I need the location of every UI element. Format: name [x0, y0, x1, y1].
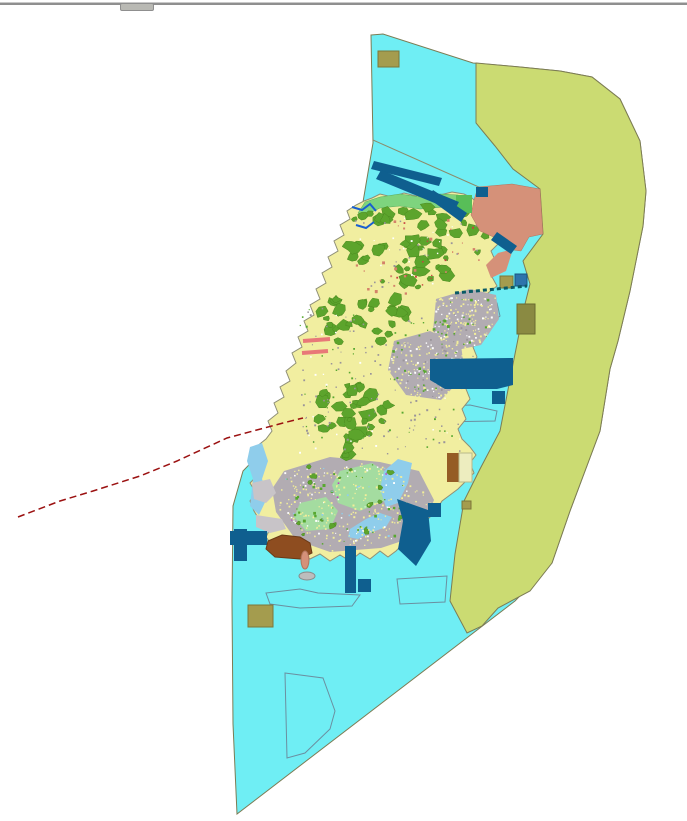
land-use-speckle: [301, 529, 302, 530]
land-use-speckle: [365, 494, 367, 496]
land-use-speckle: [379, 534, 381, 536]
land-use-speckle: [323, 525, 324, 526]
land-use-speckle: [385, 479, 386, 480]
land-use-speckle: [307, 432, 309, 434]
land-use-speckle: [397, 448, 398, 449]
land-use-speckle: [314, 424, 316, 426]
pier-L-horizontal: [230, 531, 267, 545]
land-use-speckle: [326, 326, 328, 328]
land-use-speckle: [479, 339, 481, 341]
land-use-speckle: [432, 388, 434, 390]
land-use-speckle: [405, 354, 407, 356]
land-use-speckle: [437, 331, 439, 333]
mountain-blob: [301, 533, 304, 536]
land-use-speckle: [452, 348, 453, 349]
land-use-speckle: [368, 529, 369, 530]
land-use-speckle: [355, 378, 356, 379]
land-use-speckle: [327, 520, 329, 522]
land-use-speckle: [395, 390, 396, 391]
land-use-speckle: [333, 537, 335, 539]
land-use-speckle: [446, 305, 448, 307]
land-use-speckle: [414, 390, 416, 392]
land-use-speckle: [378, 518, 379, 519]
land-use-speckle: [444, 394, 446, 396]
land-use-speckle: [349, 372, 351, 374]
land-use-speckle: [430, 349, 431, 350]
land-use-speckle: [300, 528, 301, 529]
land-use-speckle: [315, 520, 317, 522]
land-use-speckle: [388, 508, 390, 510]
land-use-speckle: [456, 344, 458, 346]
land-use-speckle: [367, 288, 370, 291]
land-use-speckle: [445, 334, 447, 336]
land-use-speckle: [382, 467, 384, 469]
land-use-speckle: [414, 369, 415, 370]
land-use-speckle: [364, 270, 365, 271]
land-use-speckle: [435, 326, 436, 327]
land-use-speckle: [384, 468, 385, 469]
land-use-speckle: [378, 394, 380, 396]
land-use-speckle: [491, 317, 493, 319]
land-use-speckle: [389, 429, 391, 431]
land-use-speckle: [389, 528, 390, 529]
land-use-speckle: [445, 350, 447, 352]
land-use-speckle: [441, 314, 442, 315]
land-use-speckle: [363, 222, 365, 224]
land-use-speckle: [350, 331, 351, 332]
land-use-speckle: [328, 402, 329, 403]
land-use-speckle: [363, 517, 365, 519]
land-use-speckle: [404, 222, 406, 224]
land-use-speckle: [419, 367, 422, 370]
land-use-speckle: [374, 360, 376, 362]
land-use-speckle: [353, 484, 354, 485]
land-use-speckle: [417, 369, 418, 370]
land-use-speckle: [443, 320, 444, 321]
square-south-blue: [358, 579, 371, 592]
land-use-speckle: [392, 237, 394, 239]
land-use-speckle: [411, 240, 413, 242]
land-use-speckle: [379, 473, 381, 475]
land-use-speckle: [408, 375, 409, 376]
land-use-speckle: [365, 347, 367, 349]
land-use-speckle: [307, 532, 309, 534]
pink-pier-2: [302, 351, 328, 353]
land-use-speckle: [441, 425, 443, 427]
land-use-speckle: [410, 402, 412, 404]
land-use-speckle: [410, 344, 411, 345]
land-use-speckle: [474, 333, 476, 335]
land-use-speckle: [395, 332, 397, 334]
land-use-speckle: [309, 493, 310, 494]
land-use-speckle: [490, 308, 492, 310]
land-use-speckle: [298, 470, 299, 471]
land-use-speckle: [364, 468, 365, 469]
land-use-speckle: [414, 387, 415, 388]
land-use-speckle: [422, 491, 424, 493]
land-use-speckle: [344, 468, 345, 469]
land-use-speckle: [374, 282, 376, 284]
land-use-speckle: [403, 228, 405, 230]
land-use-speckle: [306, 430, 308, 432]
land-use-speckle: [375, 509, 376, 510]
land-use-speckle: [414, 269, 417, 272]
land-use-speckle: [314, 483, 316, 485]
land-use-speckle: [404, 275, 406, 277]
land-use-speckle: [382, 261, 385, 264]
land-use-speckle: [421, 318, 423, 320]
land-use-speckle: [466, 314, 467, 315]
land-use-speckle: [391, 538, 392, 539]
land-use-speckle: [374, 527, 375, 528]
land-use-speckle: [293, 518, 295, 520]
land-use-speckle: [471, 322, 473, 324]
land-use-speckle: [393, 285, 395, 287]
land-use-speckle: [308, 515, 309, 516]
land-use-speckle: [402, 485, 403, 486]
land-use-speckle: [382, 505, 384, 507]
land-use-speckle: [330, 474, 331, 475]
land-use-speckle: [461, 327, 463, 329]
land-use-speckle: [370, 426, 372, 428]
land-use-speckle: [331, 363, 333, 365]
land-use-speckle: [416, 348, 418, 350]
land-use-speckle: [455, 309, 456, 310]
land-use-speckle: [413, 364, 414, 365]
land-use-speckle: [371, 543, 372, 544]
land-use-speckle: [447, 352, 449, 354]
land-use-speckle: [367, 539, 369, 541]
land-use-speckle: [475, 337, 477, 339]
land-use-speckle: [353, 505, 355, 507]
land-use-speckle: [381, 508, 382, 509]
land-use-speckle: [392, 478, 394, 480]
land-use-speckle: [328, 505, 329, 506]
land-use-speckle: [307, 476, 309, 478]
land-use-speckle: [321, 334, 323, 336]
land-use-speckle: [486, 336, 487, 337]
land-use-speckle: [448, 329, 449, 330]
land-use-speckle: [310, 314, 312, 316]
land-use-speckle: [293, 521, 295, 523]
land-use-speckle: [409, 428, 410, 429]
land-use-speckle: [339, 494, 341, 496]
land-use-speckle: [423, 387, 425, 389]
land-use-speckle: [404, 346, 406, 348]
land-use-speckle: [366, 527, 368, 529]
land-use-speckle: [396, 474, 397, 475]
land-use-speckle: [349, 472, 350, 473]
land-use-speckle: [463, 316, 465, 318]
land-use-speckle: [425, 438, 426, 439]
land-use-speckle: [454, 335, 456, 337]
land-use-speckle: [293, 513, 294, 514]
land-use-speckle: [363, 500, 364, 501]
land-use-speckle: [362, 530, 364, 532]
land-use-speckle: [435, 322, 437, 324]
land-use-speckle: [363, 324, 365, 326]
land-use-speckle: [413, 429, 414, 430]
land-use-speckle: [472, 356, 473, 357]
land-use-speckle: [376, 513, 377, 514]
land-use-speckle: [424, 255, 425, 256]
land-use-speckle: [297, 473, 299, 475]
land-use-speckle: [331, 477, 332, 478]
land-use-speckle: [350, 321, 352, 323]
harbor-square-east: [492, 391, 505, 404]
land-use-speckle: [362, 487, 364, 489]
land-use-speckle: [427, 330, 428, 331]
land-use-speckle: [473, 314, 475, 316]
map-canvas[interactable]: [0, 5, 687, 821]
khaki-rect-bottom: [248, 605, 273, 627]
land-use-speckle: [462, 243, 463, 244]
land-use-speckle: [435, 311, 437, 313]
land-use-speckle: [307, 525, 308, 526]
land-use-speckle: [323, 484, 326, 487]
land-use-speckle: [418, 388, 419, 389]
land-use-speckle: [355, 493, 356, 494]
land-use-speckle: [406, 491, 407, 492]
land-use-speckle: [365, 352, 366, 353]
mountain-blob: [362, 418, 368, 425]
land-use-speckle: [383, 435, 385, 437]
land-use-speckle: [356, 489, 357, 490]
land-use-speckle: [387, 453, 388, 454]
land-use-speckle: [332, 550, 334, 552]
land-use-speckle: [327, 425, 328, 426]
land-use-speckle: [435, 416, 437, 418]
land-use-speckle: [436, 353, 437, 354]
land-use-speckle: [339, 479, 341, 481]
land-use-speckle: [396, 377, 398, 379]
land-use-speckle: [380, 265, 382, 267]
land-use-speckle: [444, 430, 446, 432]
land-use-speckle: [368, 426, 370, 428]
land-use-speckle: [419, 355, 421, 357]
land-use-speckle: [300, 325, 301, 326]
land-use-speckle: [297, 496, 299, 498]
land-use-speckle: [306, 426, 307, 427]
land-use-speckle: [455, 322, 457, 324]
land-use-speckle: [450, 297, 452, 299]
land-use-speckle: [453, 333, 455, 335]
land-use-speckle: [488, 306, 489, 307]
land-use-speckle: [353, 348, 355, 350]
land-use-speckle: [369, 515, 371, 517]
land-use-speckle: [463, 344, 464, 345]
land-use-speckle: [291, 517, 292, 518]
land-use-speckle: [407, 380, 409, 382]
land-use-speckle: [332, 507, 333, 508]
land-use-speckle: [443, 338, 445, 340]
land-use-speckle: [344, 449, 346, 451]
land-use-speckle: [476, 250, 478, 252]
land-use-speckle: [315, 448, 317, 450]
land-use-speckle: [388, 282, 389, 283]
land-use-speckle: [435, 331, 436, 332]
land-use-speckle: [420, 394, 422, 396]
land-use-speckle: [405, 292, 407, 294]
land-use-speckle: [389, 249, 390, 250]
land-use-speckle: [318, 487, 320, 489]
land-use-speckle: [397, 437, 398, 438]
land-use-speckle: [405, 372, 406, 373]
map-window: [0, 0, 687, 821]
land-use-speckle: [430, 339, 432, 341]
land-use-speckle: [306, 489, 308, 491]
land-use-speckle: [450, 302, 451, 303]
land-use-speckle: [347, 530, 349, 532]
land-use-speckle: [447, 336, 449, 338]
land-use-speckle: [320, 488, 323, 491]
land-use-speckle: [303, 379, 305, 381]
land-use-speckle: [433, 439, 435, 441]
land-use-speckle: [394, 220, 397, 223]
land-use-speckle: [455, 355, 457, 357]
land-use-speckle: [347, 524, 348, 525]
land-use-speckle: [399, 249, 400, 250]
land-use-speckle: [400, 521, 401, 522]
land-use-speckle: [401, 349, 403, 351]
land-use-speckle: [374, 510, 376, 512]
land-use-speckle: [357, 529, 359, 531]
land-use-speckle: [419, 414, 421, 416]
land-use-speckle: [426, 409, 428, 411]
land-use-speckle: [458, 326, 459, 327]
land-use-speckle: [474, 304, 476, 306]
land-use-speckle: [474, 345, 476, 347]
land-use-speckle: [384, 526, 386, 528]
land-use-speckle: [298, 512, 300, 514]
land-use-speckle: [353, 542, 355, 544]
land-use-speckle: [479, 331, 480, 332]
land-use-speckle: [408, 261, 410, 263]
land-use-speckle: [443, 305, 444, 306]
khaki-square-se: [462, 501, 471, 509]
land-use-speckle: [336, 315, 337, 316]
land-use-speckle: [394, 267, 397, 270]
land-use-speckle: [418, 370, 419, 371]
land-use-speckle: [418, 346, 420, 348]
land-use-speckle: [402, 374, 403, 375]
land-use-speckle: [323, 400, 325, 402]
land-use-speckle: [450, 305, 451, 306]
land-use-speckle: [400, 366, 401, 367]
land-use-speckle: [335, 491, 336, 492]
land-use-speckle: [404, 494, 406, 496]
land-use-speckle: [443, 441, 445, 443]
land-use-speckle: [411, 361, 412, 362]
land-use-speckle: [395, 350, 396, 351]
land-use-speckle: [432, 283, 434, 285]
land-use-speckle: [378, 354, 380, 356]
land-use-speckle: [450, 229, 451, 230]
land-use-speckle: [326, 384, 328, 386]
land-use-speckle: [458, 329, 459, 330]
land-use-speckle: [360, 466, 361, 467]
land-use-speckle: [472, 227, 474, 229]
land-use-speckle: [444, 330, 445, 331]
land-use-speckle: [396, 348, 397, 349]
land-use-speckle: [448, 345, 450, 347]
land-use-speckle: [403, 360, 405, 362]
land-use-speckle: [472, 319, 473, 320]
land-use-speckle: [322, 308, 324, 310]
land-use-speckle: [347, 494, 349, 496]
land-use-speckle: [463, 312, 464, 313]
land-use-speckle: [468, 314, 469, 315]
land-use-speckle: [384, 499, 385, 500]
land-use-speckle: [334, 470, 335, 471]
land-use-speckle: [287, 512, 289, 514]
land-use-speckle: [319, 492, 320, 493]
land-use-speckle: [429, 238, 432, 241]
land-use-speckle: [395, 371, 397, 373]
land-use-speckle: [302, 309, 303, 310]
land-use-speckle: [392, 345, 393, 346]
land-use-speckle: [373, 529, 375, 531]
land-use-speckle: [485, 317, 486, 318]
land-use-speckle: [440, 395, 442, 397]
land-use-speckle: [322, 514, 324, 516]
land-use-speckle: [473, 330, 474, 331]
land-use-speckle: [427, 255, 428, 256]
land-use-speckle: [477, 304, 479, 306]
land-use-speckle: [315, 396, 317, 398]
land-use-speckle: [294, 471, 295, 472]
land-use-speckle: [446, 315, 448, 317]
land-use-speckle: [405, 387, 407, 389]
land-use-speckle: [418, 396, 419, 397]
land-use-speckle: [330, 545, 331, 546]
land-use-speckle: [495, 298, 496, 299]
land-use-speckle: [355, 485, 357, 487]
land-use-speckle: [365, 498, 367, 500]
land-use-speckle: [439, 336, 440, 337]
land-use-speckle: [385, 473, 387, 475]
land-use-speckle: [450, 323, 451, 324]
pier-bar-south: [345, 546, 356, 593]
land-use-speckle: [311, 494, 313, 496]
land-use-speckle: [313, 517, 315, 519]
land-use-speckle: [481, 304, 482, 305]
land-use-speckle: [474, 307, 475, 308]
land-use-speckle: [381, 519, 382, 520]
land-use-speckle: [458, 424, 459, 425]
land-use-speckle: [295, 486, 297, 488]
land-use-speckle: [405, 446, 406, 447]
land-use-speckle: [380, 468, 382, 470]
land-use-speckle: [362, 466, 363, 467]
land-use-speckle: [374, 503, 376, 505]
land-use-speckle: [401, 497, 403, 499]
land-use-speckle: [445, 271, 447, 273]
land-use-speckle: [479, 341, 481, 343]
land-use-speckle: [338, 482, 340, 484]
land-use-speckle: [459, 439, 460, 440]
harbor-main-east: [430, 358, 513, 389]
land-use-speckle: [438, 326, 439, 327]
land-use-speckle: [437, 253, 438, 254]
land-use-speckle: [355, 512, 357, 514]
land-use-speckle: [392, 354, 393, 355]
land-use-speckle: [423, 495, 424, 496]
land-use-speckle: [339, 534, 341, 536]
land-use-speckle: [294, 501, 296, 503]
land-use-speckle: [405, 345, 406, 346]
land-use-speckle: [324, 472, 325, 473]
